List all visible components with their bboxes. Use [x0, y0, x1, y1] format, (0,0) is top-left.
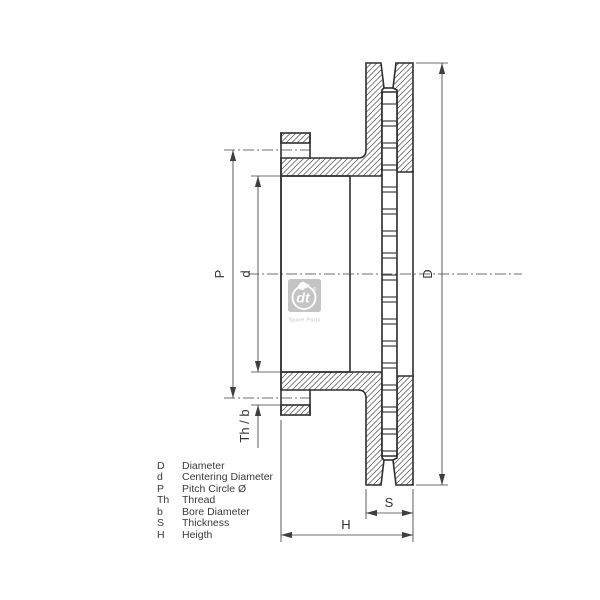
- legend: D Diameter d Centering Diameter P Pitch …: [157, 460, 274, 541]
- vent-hole: [382, 412, 397, 429]
- lower-flange-and-left-cheek: [281, 372, 384, 485]
- dim-label-H: H: [341, 517, 350, 532]
- legend-desc: Heigth: [182, 529, 213, 541]
- vent-hole: [382, 302, 397, 319]
- vent-hole: [382, 126, 397, 143]
- dt-logo-watermark: dt ® Spare Parts: [288, 279, 321, 324]
- dim-label-P: P: [212, 270, 227, 279]
- technical-drawing-page: dt ® Spare Parts: [0, 0, 600, 600]
- vent-hole: [382, 104, 397, 121]
- dim-label-S: S: [385, 495, 394, 510]
- vent-hole: [382, 192, 397, 209]
- centerlines: [224, 150, 522, 398]
- vent-hole: [382, 368, 397, 385]
- dt-logo-caption: Spare Parts: [288, 318, 320, 324]
- legend-desc: Thread: [182, 494, 215, 506]
- vent-hole: [382, 170, 397, 187]
- dim-label-D: D: [420, 269, 435, 278]
- dim-label-thread-bore: Th / b: [237, 409, 252, 442]
- dim-label-d: d: [238, 270, 253, 277]
- vent-hole: [382, 324, 397, 341]
- legend-desc: Centering Diameter: [182, 471, 274, 483]
- lower-stud-block: [281, 405, 310, 415]
- vent-hole: [382, 434, 397, 451]
- vent-hole: [382, 148, 397, 165]
- vent-hole: [382, 214, 397, 231]
- vent-hole: [382, 236, 397, 253]
- vent-hole: [382, 346, 397, 363]
- legend-desc: Thickness: [182, 517, 229, 529]
- vent-hole: [382, 390, 397, 407]
- legend-term: S: [157, 517, 164, 529]
- upper-stud-block: [281, 133, 310, 143]
- brake-disc-drawing: dt ® Spare Parts: [0, 0, 600, 600]
- registered-mark: ®: [313, 286, 317, 293]
- legend-term: H: [157, 529, 165, 541]
- upper-flange-and-left-cheek: [281, 63, 384, 176]
- legend-term: d: [157, 471, 163, 483]
- dt-logo-brand: dt: [296, 290, 311, 306]
- vent-hole: [382, 280, 397, 297]
- legend-term: Th: [157, 494, 169, 506]
- ventilation-holes: [382, 104, 397, 451]
- vent-hole: [382, 258, 397, 275]
